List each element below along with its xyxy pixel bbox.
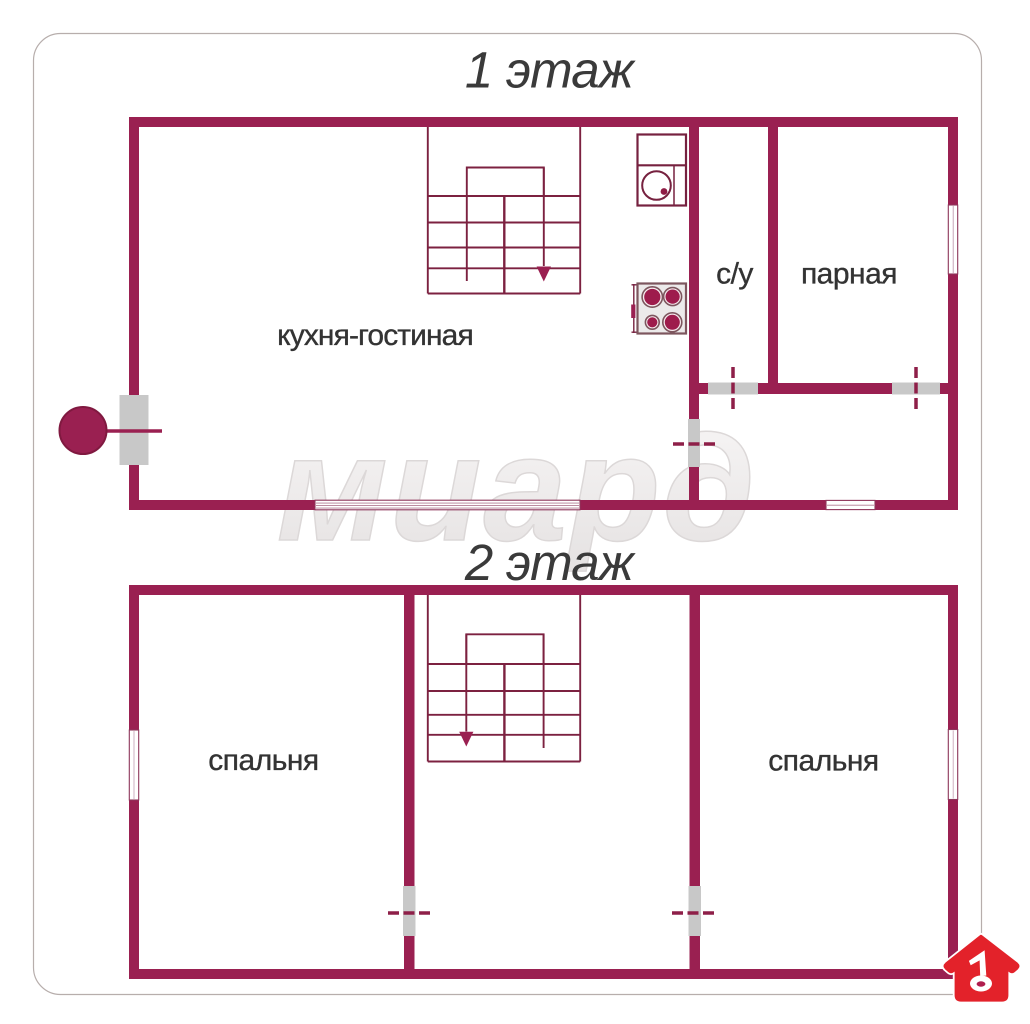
svg-text:кухня-гостиная: кухня-гостиная xyxy=(277,319,473,352)
svg-text:спальня: спальня xyxy=(208,744,318,777)
svg-text:2 этаж: 2 этаж xyxy=(464,534,636,591)
svg-text:парная: парная xyxy=(801,258,897,291)
svg-text:с/у: с/у xyxy=(716,258,753,291)
svg-text:спальня: спальня xyxy=(768,745,878,778)
svg-text:1 этаж: 1 этаж xyxy=(465,42,636,99)
